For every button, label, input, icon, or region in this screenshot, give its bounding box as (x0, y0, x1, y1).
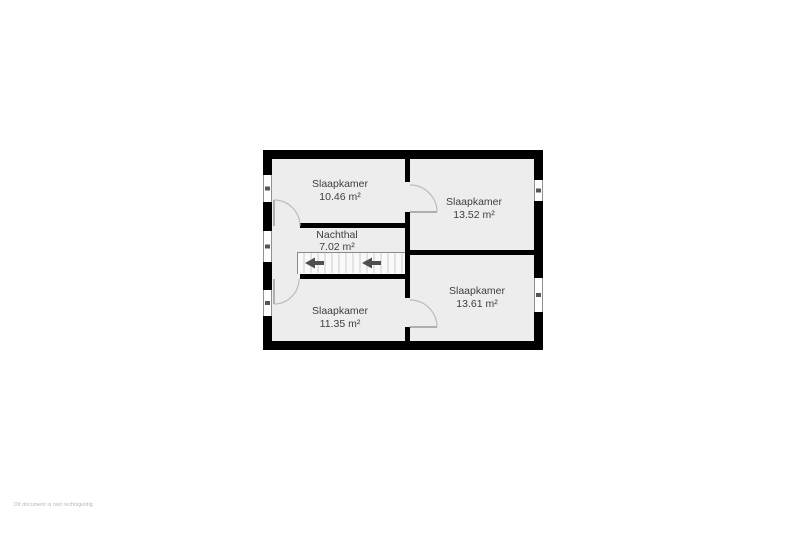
room-label-nachthal: Nachthal 7.02 m² (316, 229, 357, 253)
wall-bottom (263, 341, 543, 350)
wall-interior-horizontal (410, 250, 534, 255)
room-name: Slaapkamer (446, 196, 503, 208)
wall-left-segment (263, 316, 272, 350)
wall-interior-vertical (405, 159, 410, 182)
floor-plan-drawing: Slaapkamer 10.46 m² Slaapkamer 13.52 m² … (0, 0, 800, 533)
room-area: 11.35 m² (320, 318, 361, 330)
window-icon (263, 231, 272, 262)
wall-top (263, 150, 543, 159)
window-icon (534, 278, 543, 312)
room-area: 10.46 m² (319, 191, 361, 203)
wall-right-segment (534, 312, 543, 350)
room-name: Slaapkamer (449, 285, 506, 297)
window-icon (534, 180, 543, 201)
room-name: Slaapkamer (312, 178, 369, 190)
room-label-slaapkamer-bottom-left: Slaapkamer 11.35 m² (312, 305, 369, 330)
room-area: 7.02 m² (319, 241, 355, 253)
room-area: 13.52 m² (453, 209, 495, 221)
wall-interior-vertical (405, 212, 410, 298)
wall-right-segment (534, 150, 543, 180)
wall-interior-horizontal (300, 274, 405, 279)
wall-left-segment (263, 150, 272, 175)
room-label-slaapkamer-top-left: Slaapkamer 10.46 m² (312, 178, 369, 203)
staircase (297, 252, 405, 274)
room-name: Nachthal (316, 229, 357, 241)
room-area: 13.61 m² (456, 298, 498, 310)
wall-interior-horizontal (300, 223, 405, 228)
wall-left-segment (263, 202, 272, 231)
wall-interior-vertical (405, 327, 410, 341)
footer-disclaimer: Dit document is niet rechtsgeldig (14, 501, 93, 509)
wall-right-segment (534, 201, 543, 278)
room-label-slaapkamer-top-right: Slaapkamer 13.52 m² (446, 196, 503, 221)
floor-plan: Slaapkamer 10.46 m² Slaapkamer 13.52 m² … (0, 0, 800, 533)
wall-left-segment (263, 262, 272, 290)
window-icon (263, 175, 272, 202)
room-name: Slaapkamer (312, 305, 369, 317)
window-icon (263, 290, 272, 316)
room-label-slaapkamer-bottom-right: Slaapkamer 13.61 m² (449, 285, 506, 310)
